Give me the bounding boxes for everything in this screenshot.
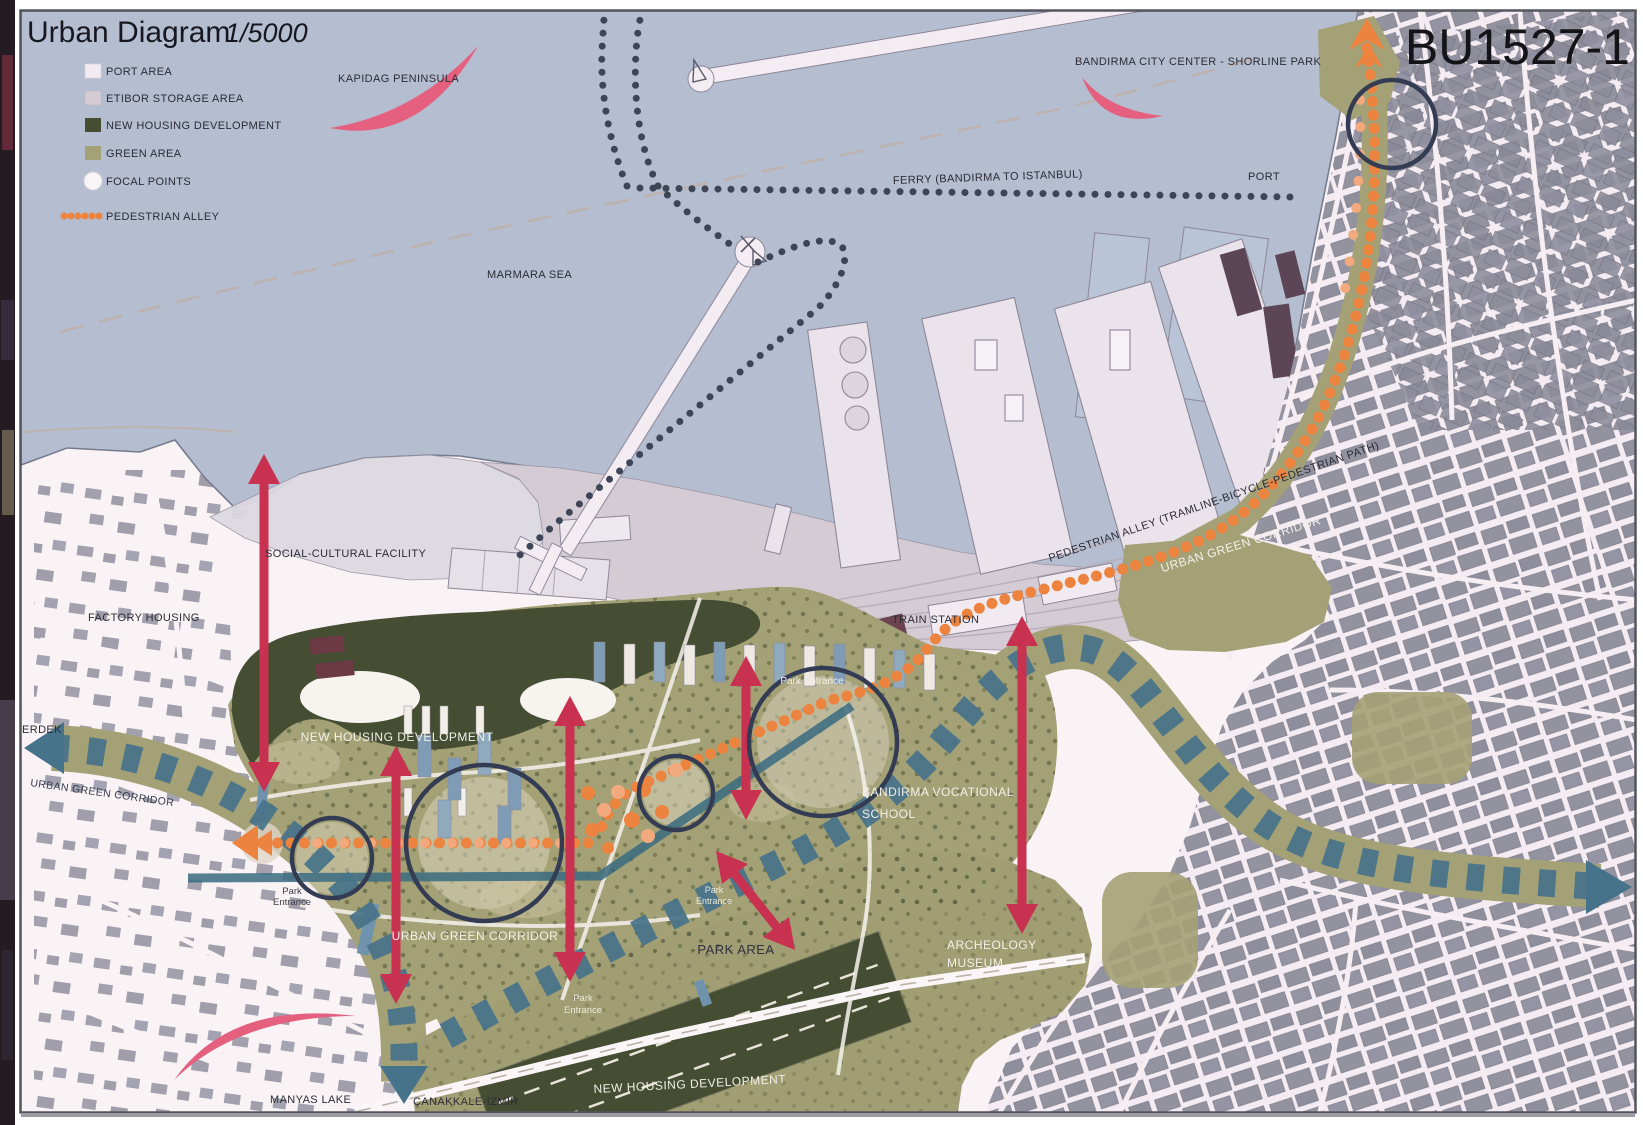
label-park-entrance-west-2: Entrance	[273, 897, 311, 908]
legend-swatch-etibor	[85, 91, 101, 105]
label-museum-1: ARCHEOLOGY	[947, 938, 1037, 952]
adjacent-panel-sliver	[0, 0, 15, 1125]
map-canvas: KAPIDAG PENINSULA BANDIRMA CITY CENTER -…	[21, 0, 1637, 1125]
label-port: PORT	[1248, 171, 1280, 183]
label-park-entrance-east-2: Entrance	[696, 896, 732, 906]
legend-swatch-focal	[84, 172, 102, 190]
legend-label-green: GREEN AREA	[106, 148, 182, 160]
urban-diagram-poster: KAPIDAG PENINSULA BANDIRMA CITY CENTER -…	[0, 0, 1643, 1125]
legend-label-focal: FOCAL POINTS	[106, 176, 191, 188]
legend-swatch-port	[85, 64, 101, 78]
label-train-station: TRAIN STATION	[892, 614, 979, 626]
label-vocational-2: SCHOOL	[862, 807, 916, 821]
label-park-entrance-north: Park Entrance	[780, 676, 844, 687]
label-kapidag: KAPIDAG PENINSULA	[338, 73, 459, 85]
label-park-entrance-west-1: Park	[282, 886, 302, 897]
label-factory-housing: FACTORY HOUSING	[88, 612, 200, 624]
map-scale: 1/5000	[225, 18, 308, 48]
legend-label-port: PORT AREA	[106, 66, 172, 78]
legend-label-housing: NEW HOUSING DEVELOPMENT	[106, 120, 281, 132]
legend-swatch-green	[85, 146, 101, 160]
label-nhd-top: NEW HOUSING DEVELOPMENT	[301, 730, 494, 744]
legend-label-etibor: ETIBOR STORAGE AREA	[106, 93, 244, 105]
urban-diagram-map: KAPIDAG PENINSULA BANDIRMA CITY CENTER -…	[0, 0, 1643, 1125]
label-vocational-1: BANDIRMA VOCATIONAL	[862, 785, 1014, 799]
legend-swatch-housing	[85, 118, 101, 132]
label-shoreline-park: BANDIRMA CITY CENTER - SHORLINE PARK	[1075, 56, 1322, 68]
plan-code: BU1527-1	[1405, 19, 1630, 75]
label-park-entrance-east-1: Park	[705, 885, 724, 895]
legend-label-alley: PEDESTRIAN ALLEY	[106, 211, 220, 223]
label-park-entrance-south-1: Park	[573, 993, 593, 1004]
label-park-area: PARK AREA	[697, 942, 774, 957]
label-canakkale: ÇANAKKALE-İZMİR	[413, 1095, 519, 1108]
frame-shadow	[21, 1113, 1635, 1117]
label-ugc-park: URBAN GREEN CORRIDOR	[392, 929, 559, 943]
label-erdek: ERDEK	[22, 724, 62, 736]
label-park-entrance-south-2: Entrance	[564, 1005, 602, 1016]
label-social-cultural: SOCIAL-CULTURAL FACILITY	[265, 548, 426, 560]
label-manyas: MANYAS LAKE	[270, 1094, 351, 1106]
label-marmara: MARMARA SEA	[487, 269, 572, 281]
label-museum-2: MUSEUM	[947, 956, 1003, 970]
map-title: Urban Diagram	[27, 16, 230, 49]
